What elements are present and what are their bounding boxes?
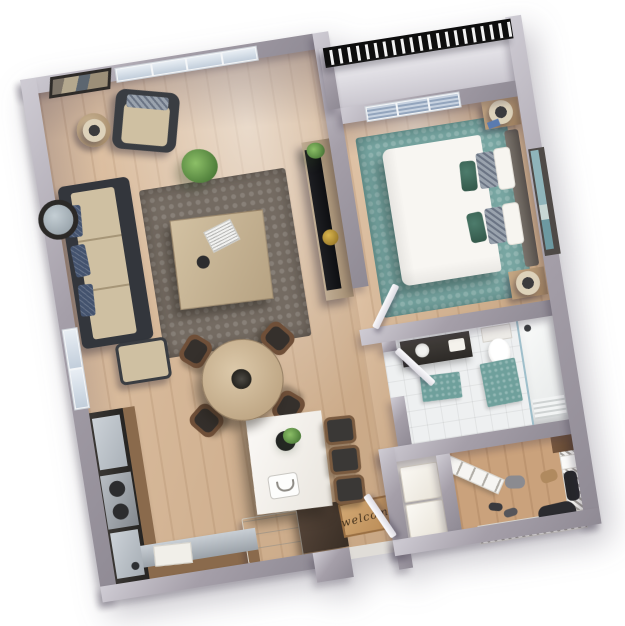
bar-stool [323, 415, 357, 446]
bar-stool [333, 474, 367, 505]
sofa-pillow [78, 284, 96, 317]
window-pane [222, 48, 257, 64]
washer [399, 461, 442, 503]
apartment-plan: welcome [20, 1, 604, 618]
window-blind [429, 94, 460, 110]
burner [112, 502, 130, 520]
window-pane [187, 53, 222, 69]
window-blind [398, 99, 429, 115]
kitchen-island [246, 410, 333, 515]
clothes-pile [505, 475, 525, 488]
vanity-towels [448, 338, 466, 352]
serving-tray [267, 472, 300, 500]
shower-head [524, 324, 532, 332]
vanity-sink [414, 342, 430, 358]
window-blind [367, 104, 398, 120]
dish-towel [153, 542, 193, 567]
shoes [488, 502, 503, 511]
shower-door-track [532, 395, 567, 420]
tray-handle [276, 479, 295, 493]
armchair [111, 88, 180, 153]
burner [108, 480, 126, 498]
wall-entry-left [313, 547, 354, 582]
floor-plan-render: welcome [0, 0, 625, 626]
ottoman [115, 336, 173, 386]
bar-stool [328, 444, 362, 475]
window-pane [152, 59, 187, 75]
window-pane [117, 65, 152, 81]
teal-pillow [459, 160, 478, 192]
